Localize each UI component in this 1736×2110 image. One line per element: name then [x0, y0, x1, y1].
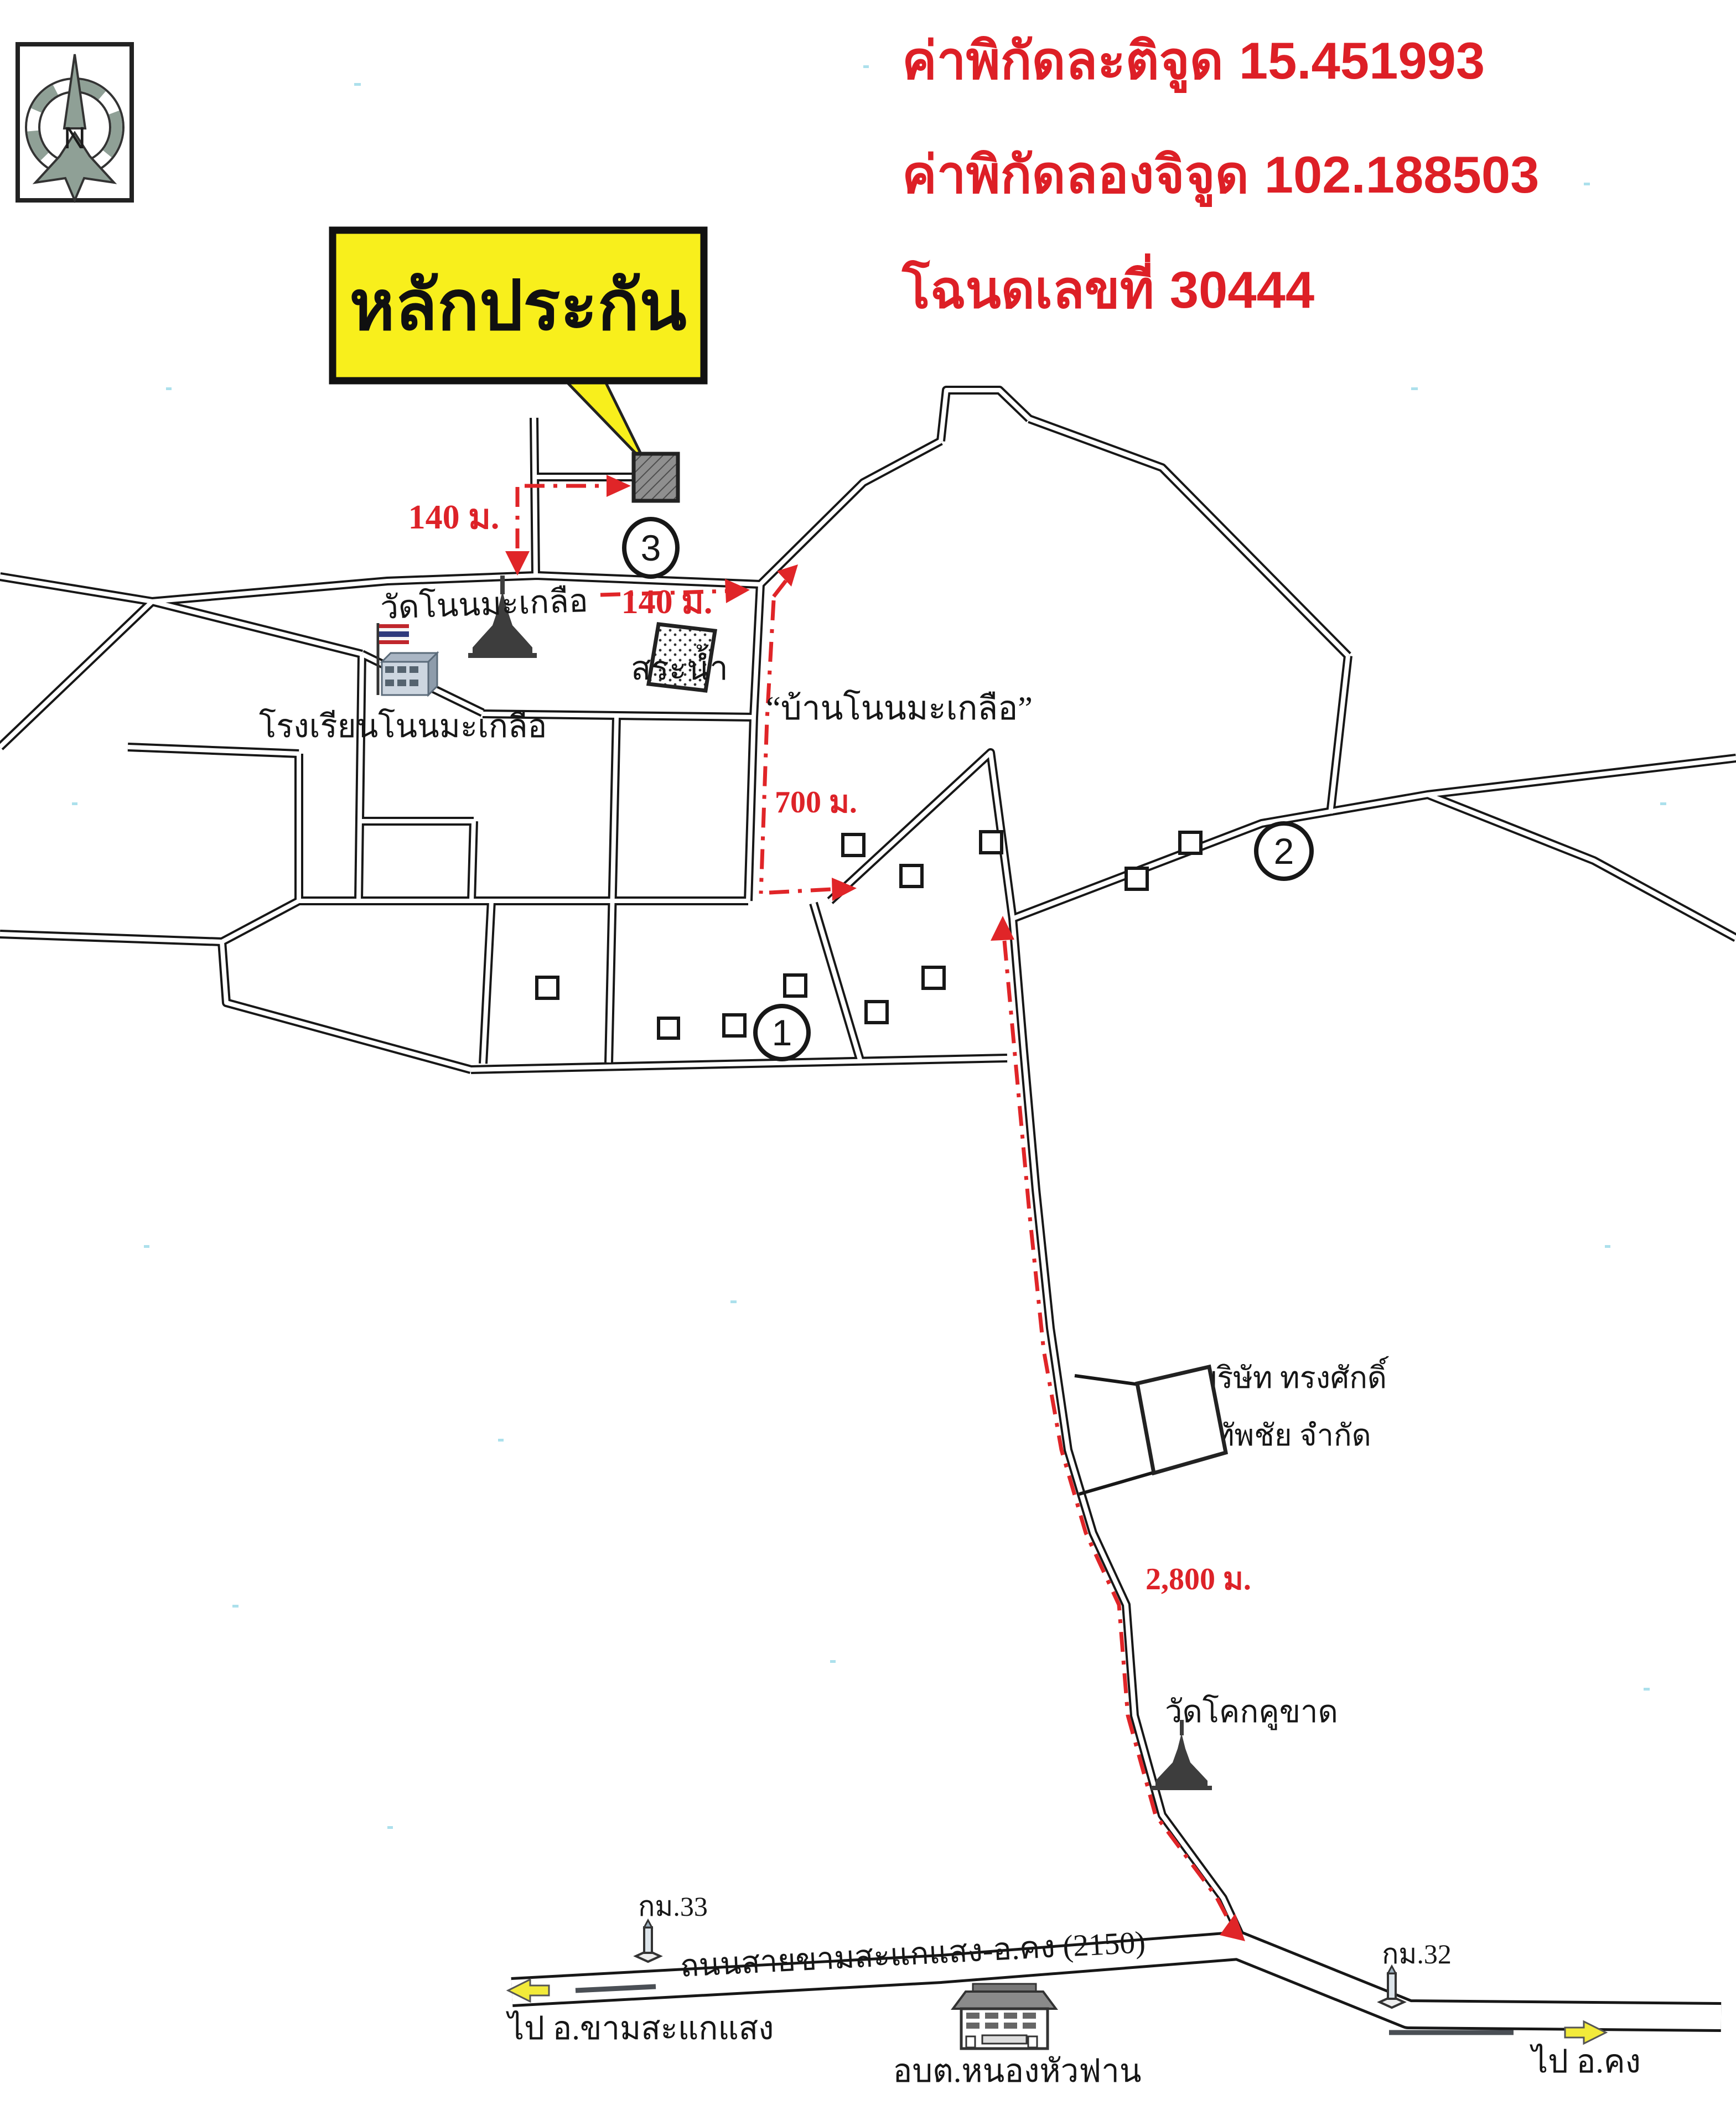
school-building-icon	[382, 653, 437, 695]
zone-marker-3: 3	[624, 519, 677, 577]
zone-marker-1: 1	[755, 1006, 809, 1059]
km32-label: กม.32	[1382, 1938, 1452, 1969]
company-label-line1: บริษัท ทรงศักดิ์	[1198, 1356, 1389, 1394]
distance-2800m: 2,800 ม.	[1146, 1562, 1251, 1596]
village-label: “บ้านโนนมะเกลือ”	[766, 689, 1033, 727]
distance-140m-1: 140 ม.	[408, 499, 500, 536]
distance-140m-2: 140 ม.	[621, 583, 713, 621]
to-east-label: ไป อ.คง	[1530, 2043, 1641, 2080]
subdistrict-office-icon	[953, 1984, 1056, 2049]
longitude-line: ค่าพิกัดลองจิจูด102.188503	[902, 146, 1539, 208]
house	[901, 865, 922, 886]
zone-3-number: 3	[641, 527, 661, 568]
company-parcel	[1137, 1367, 1226, 1473]
temple-south-label: วัดโคกคูขาด	[1165, 1694, 1338, 1730]
house	[1126, 868, 1147, 889]
house	[866, 1002, 887, 1023]
compass-north-label: N	[64, 120, 86, 155]
house	[724, 1015, 745, 1036]
km33-label: กม.33	[638, 1891, 708, 1922]
house	[981, 832, 1002, 853]
house	[1180, 832, 1201, 853]
thai-flag-icon	[379, 624, 409, 644]
subdistrict-office-label: อบต.หนองหัวฟาน	[893, 2053, 1142, 2089]
zone-2-number: 2	[1274, 831, 1294, 872]
map-canvas: หลักประกัน ค่าพิกัดละติจูด15.451993 ค่าพ…	[0, 0, 1736, 2110]
company-label-line2: ทัพชัย จำกัด	[1215, 1419, 1371, 1452]
zone-1-number: 1	[772, 1012, 792, 1053]
school-label: โรงเรียนโนนมะเกลือ	[259, 708, 547, 744]
property-parcel	[634, 454, 678, 501]
house	[923, 967, 944, 988]
compass-rose: N	[18, 44, 132, 200]
distance-700m: 700 ม.	[775, 785, 857, 820]
pond-label: สระน้ำ	[631, 644, 728, 687]
zone-marker-2: 2	[1256, 823, 1312, 879]
temple-main-label: วัดโนนมะเกลือ	[380, 582, 588, 626]
collateral-sign: หลักประกัน	[333, 230, 704, 381]
paper-background	[0, 0, 1736, 2110]
house	[537, 977, 558, 998]
to-west-label: ไป อ.ขามสะแกแสง	[506, 2010, 774, 2046]
house	[659, 1018, 678, 1038]
latitude-line: ค่าพิกัดละติจูด15.451993	[902, 32, 1485, 94]
house	[843, 834, 864, 856]
scanned-map-page: หลักประกัน ค่าพิกัดละติจูด15.451993 ค่าพ…	[0, 0, 1736, 2110]
house	[785, 975, 806, 996]
deed-number-line: โฉนดเลขที่30444	[901, 253, 1314, 319]
collateral-sign-label: หลักประกัน	[349, 267, 686, 344]
